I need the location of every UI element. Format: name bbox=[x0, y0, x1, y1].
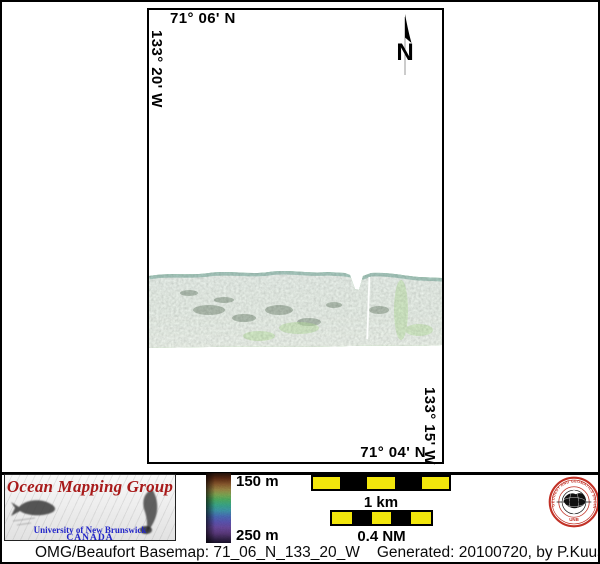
scalebar-nm bbox=[330, 510, 433, 526]
depth-label-top: 150 m bbox=[236, 473, 279, 490]
depth-label-bottom: 250 m bbox=[236, 527, 279, 544]
seal-acronym: UNB bbox=[569, 517, 579, 522]
page-frame: 71° 06' N 133° 20' W 133° 15' W 71° 04' … bbox=[0, 0, 600, 564]
scalebar-km-label: 1 km bbox=[311, 494, 451, 511]
coordinate-label-top: 71° 06' N bbox=[170, 10, 236, 27]
omg-logo-title: Ocean Mapping Group bbox=[5, 477, 175, 497]
north-arrow-icon: N bbox=[393, 12, 417, 78]
caption-generated: Generated: 20100720, by P.Kuus bbox=[377, 544, 600, 562]
unb-seal-icon: GEODESY AND GEOMATICS ENGINEERING UNB bbox=[548, 476, 600, 528]
coordinate-label-bottom: 71° 04' N bbox=[312, 444, 426, 461]
coordinate-label-left: 133° 20' W bbox=[148, 30, 165, 108]
caption-basemap: OMG/Beaufort Basemap: 71_06_N_133_20_W bbox=[35, 544, 360, 562]
whale-illustration bbox=[11, 500, 55, 516]
scalebar-nm-label: 0.4 NM bbox=[330, 528, 433, 545]
omg-logo: Ocean Mapping Group University of New Br… bbox=[4, 474, 176, 541]
depth-colorbar bbox=[206, 473, 231, 543]
north-letter: N bbox=[396, 39, 413, 66]
caption: OMG/Beaufort Basemap: 71_06_N_133_20_W G… bbox=[35, 544, 600, 562]
scalebar-km bbox=[311, 475, 451, 491]
logo-country: CANADA bbox=[5, 533, 175, 541]
